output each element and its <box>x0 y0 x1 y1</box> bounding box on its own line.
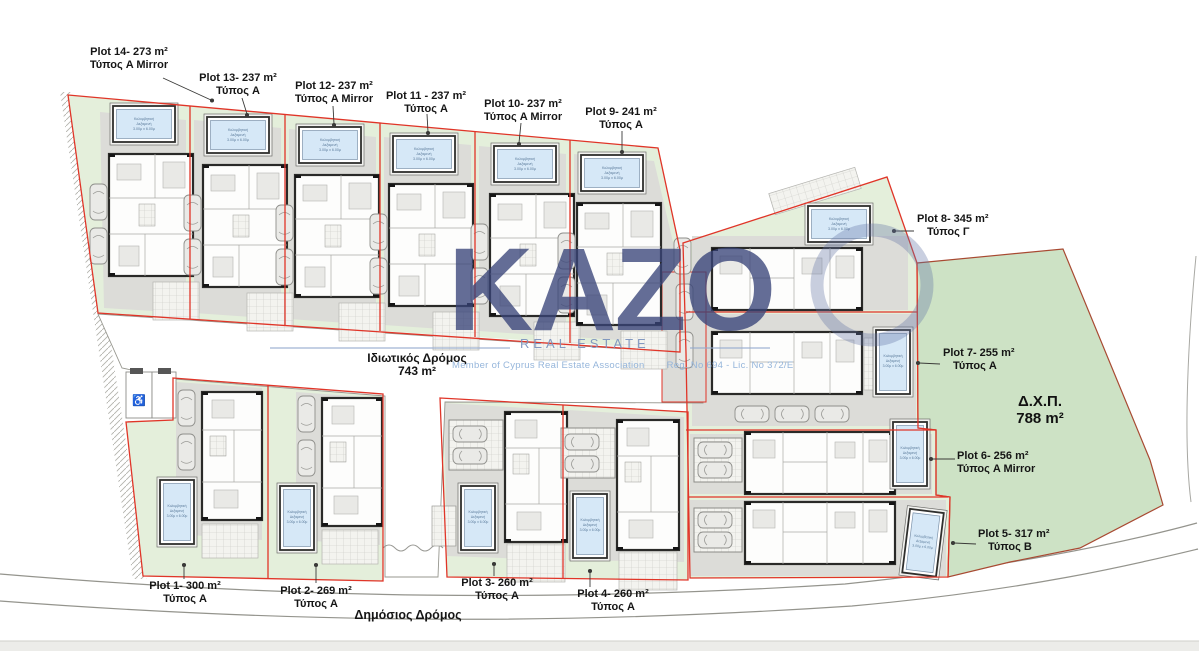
watermark-brand: KAZO <box>448 240 774 340</box>
plot-5-label: Plot 5- 317 m²Τύπος B <box>978 528 1050 554</box>
site-plan-canvas: Κολυμβητική Δεξαμενή 3.00μ x 6.00μ Κολυμ… <box>0 0 1199 651</box>
plot-14-label: Plot 14- 273 m²Τύπος A Mirror <box>90 46 168 72</box>
watermark-license: Reg. No 694 - Lic. No 372/E <box>667 360 794 371</box>
watermark-rule-left <box>270 347 510 349</box>
plot-1-label: Plot 1- 300 m²Τύπος A <box>149 580 221 606</box>
plot-13-label: Plot 13- 237 m²Τύπος A <box>199 72 277 98</box>
plot-3-label: Plot 3- 260 m²Τύπος A <box>461 577 533 603</box>
accessible-parking: ♿ <box>126 368 176 418</box>
watermark-membership-text: Member of Cyprus Real Estate Association <box>452 360 645 371</box>
plot-8-label: Plot 8- 345 m²Τύπος Γ <box>917 213 989 239</box>
plot-2-label: Plot 2- 269 m²Τύπος A <box>280 585 352 611</box>
plot-4-label: Plot 4- 260 m²Τύπος A <box>577 588 649 614</box>
watermark-subtitle: REAL ESTATE <box>520 336 650 351</box>
plot-6-label: Plot 6- 256 m²Τύπος A Mirror <box>957 450 1035 476</box>
wheelchair-icon: ♿ <box>132 394 146 407</box>
plot-7-label: Plot 7- 255 m²Τύπος A <box>943 347 1015 373</box>
public-road-label: Δημόσιος Δρόμος <box>354 609 461 622</box>
plot-9-label: Plot 9- 241 m²Τύπος A <box>585 106 657 132</box>
private-road-label: Ιδιωτικός Δρόμος743 m² <box>367 352 466 378</box>
green-area-label: Δ.Χ.Π.788 m² <box>1016 393 1064 427</box>
plot-11-label: Plot 11 - 237 m²Τύπος A <box>386 90 466 116</box>
watermark-membership: Member of Cyprus Real Estate Association… <box>452 360 816 371</box>
watermark-rule-right <box>690 347 770 349</box>
plot-10-label: Plot 10- 237 m²Τύπος A Mirror <box>484 98 562 124</box>
plot-12-label: Plot 12- 237 m²Τύπος A Mirror <box>295 80 373 106</box>
